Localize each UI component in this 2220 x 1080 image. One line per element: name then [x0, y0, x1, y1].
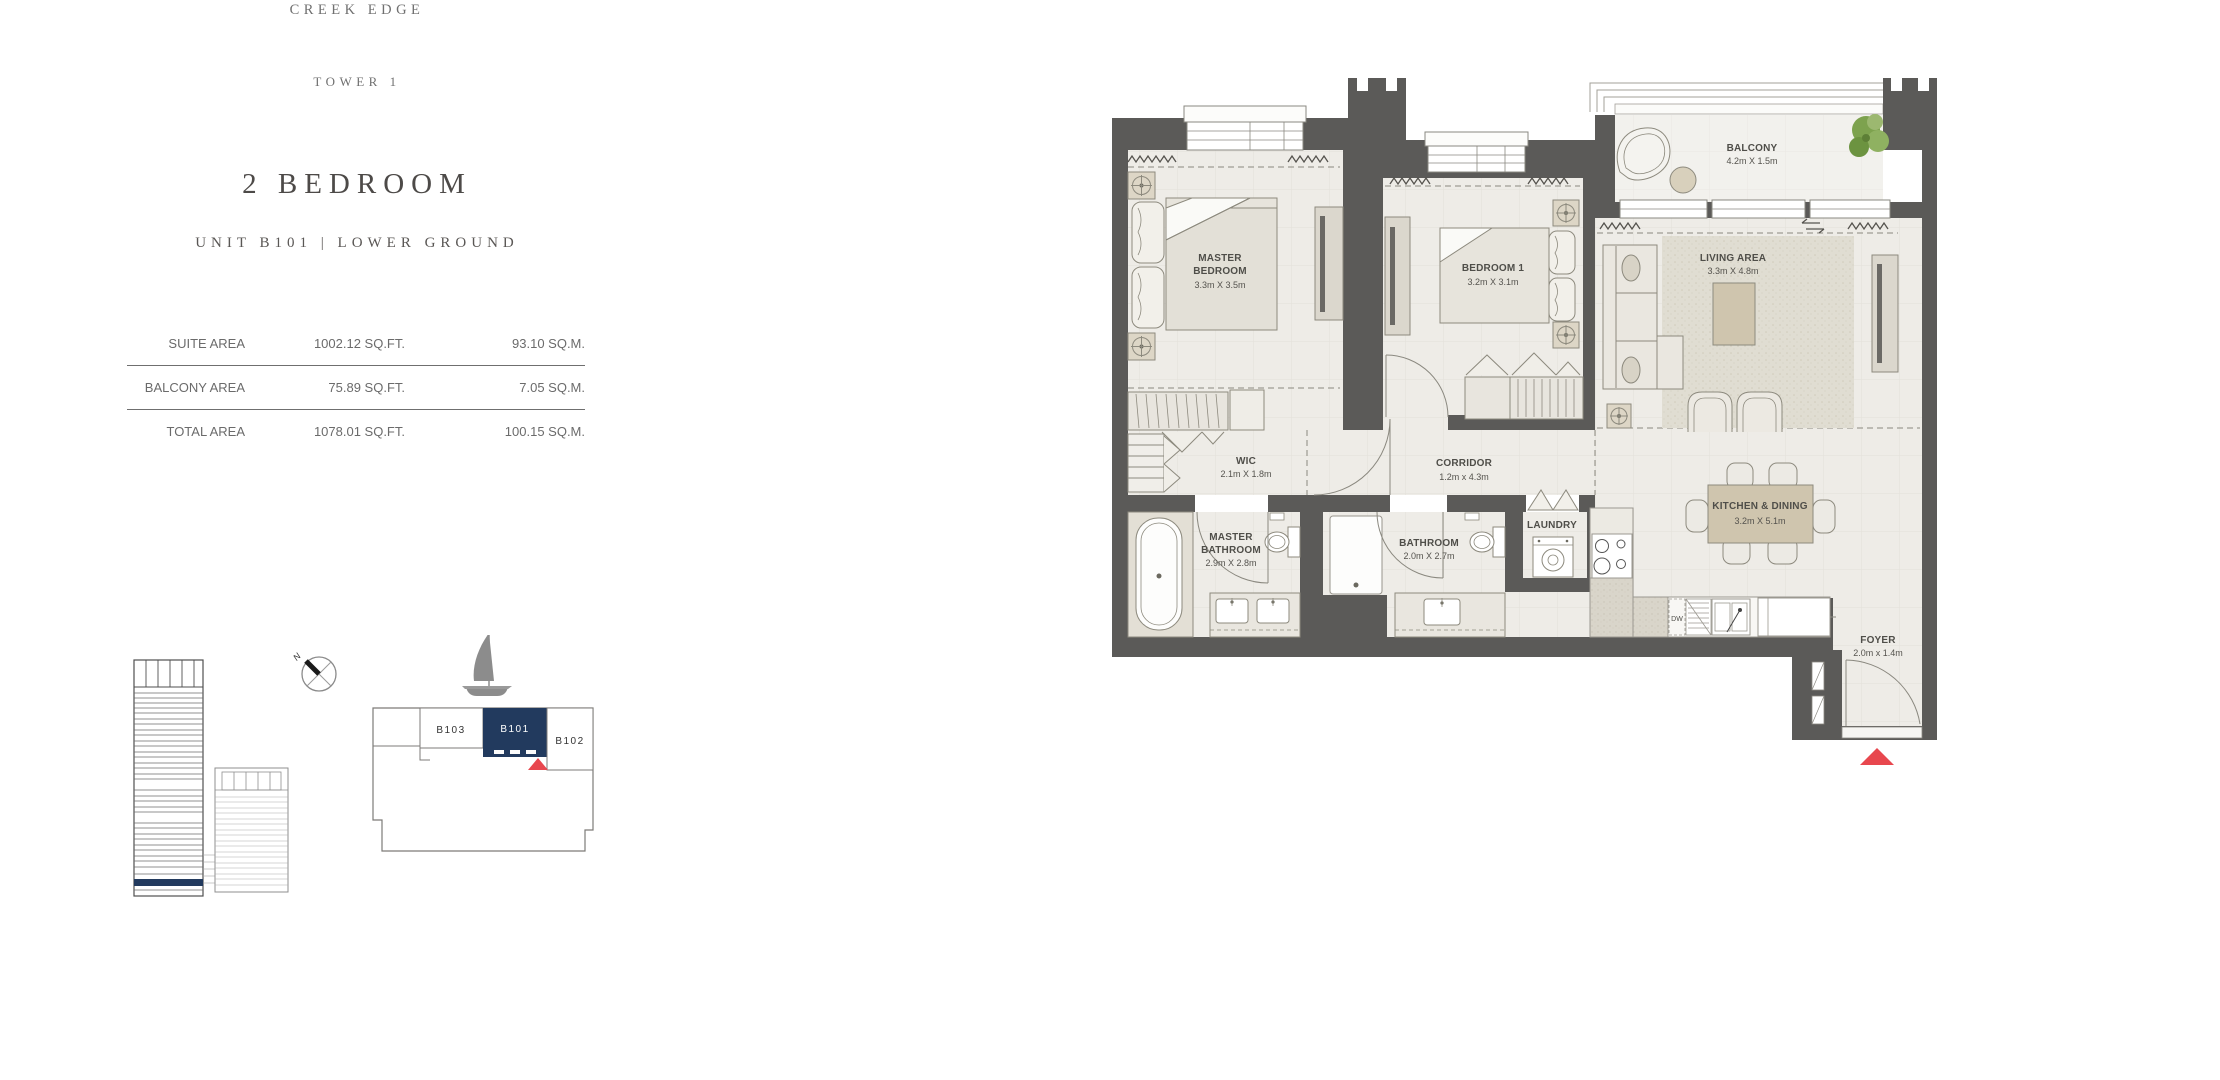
tv-dresser — [1315, 207, 1343, 320]
table-row: SUITE AREA 1002.12 SQ.FT. 93.10 SQ.M. — [127, 322, 585, 366]
area-sqm: 100.15 SQ.M. — [405, 424, 585, 439]
area-sqft: 75.89 SQ.FT. — [245, 380, 405, 395]
ac-symbol — [1607, 404, 1631, 428]
unit-info: UNIT B101 | LOWER GROUND — [107, 235, 607, 252]
window-master-bedroom — [1184, 106, 1306, 150]
svg-text:4.2m X 1.5m: 4.2m X 1.5m — [1726, 156, 1777, 166]
ac-symbol — [1553, 200, 1579, 226]
window-living-balcony — [1620, 200, 1890, 218]
tv-screen — [1390, 227, 1395, 325]
ac-symbol — [1553, 322, 1579, 348]
key-plan: B103 B101 B102 — [373, 708, 593, 851]
svg-text:FOYER: FOYER — [1860, 635, 1896, 646]
dishwasher-label: DW — [1671, 616, 1683, 623]
stove — [1592, 534, 1632, 578]
ac-symbol — [1128, 172, 1155, 199]
svg-text:2.9m X 2.8m: 2.9m X 2.8m — [1205, 558, 1256, 568]
tv-unit — [1872, 255, 1898, 372]
key-plan-label-b102: B102 — [555, 736, 584, 747]
wall-notches — [1357, 78, 1929, 91]
double-vanity — [1210, 593, 1300, 637]
svg-text:CORRIDOR: CORRIDOR — [1436, 458, 1493, 469]
tv-dresser — [1385, 217, 1410, 335]
room-label-master-bathroom: MASTER BATHROOM 2.9m X 2.8m — [1201, 532, 1261, 568]
area-sqft: 1078.01 SQ.FT. — [245, 424, 405, 439]
floor-plan: MASTER BEDROOM 3.3m X 3.5m — [1105, 40, 1965, 775]
area-label: SUITE AREA — [127, 336, 245, 351]
north-label: N — [291, 651, 303, 663]
svg-text:BATHROOM: BATHROOM — [1201, 545, 1261, 556]
svg-text:MASTER: MASTER — [1198, 253, 1242, 264]
terrace-edge-lines — [1590, 83, 1886, 114]
compass-icon: N — [291, 651, 336, 691]
side-table — [1670, 167, 1696, 193]
tv-screen — [1877, 264, 1882, 363]
svg-text:BALCONY: BALCONY — [1727, 143, 1778, 154]
area-table: SUITE AREA 1002.12 SQ.FT. 93.10 SQ.M. BA… — [127, 322, 585, 453]
location-graphics: N B103 B101 B102 — [85, 635, 625, 925]
floorplan-sheet: CREEK EDGE TOWER 1 2 BEDROOM UNIT B101 |… — [0, 0, 2220, 1080]
svg-text:KITCHEN & DINING: KITCHEN & DINING — [1712, 501, 1807, 512]
svg-text:LIVING AREA: LIVING AREA — [1700, 253, 1766, 264]
project-title: CREEK EDGE — [107, 2, 607, 19]
area-label: BALCONY AREA — [127, 380, 245, 395]
tv-screen — [1320, 216, 1325, 312]
svg-text:BEDROOM 1: BEDROOM 1 — [1462, 263, 1525, 274]
sink — [1712, 599, 1750, 635]
table-row: TOTAL AREA 1078.01 SQ.FT. 100.15 SQ.M. — [127, 410, 585, 453]
dining-table — [1708, 485, 1813, 543]
svg-text:MASTER: MASTER — [1209, 532, 1253, 543]
tower-title: TOWER 1 — [107, 74, 607, 90]
svg-text:2.0m x 1.4m: 2.0m x 1.4m — [1853, 648, 1903, 658]
room-label-master-bedroom: MASTER BEDROOM 3.3m X 3.5m — [1193, 253, 1247, 290]
shower — [1330, 516, 1382, 594]
svg-text:3.3m X 3.5m: 3.3m X 3.5m — [1194, 280, 1245, 290]
dhow-boat-icon — [462, 635, 512, 696]
area-sqm: 93.10 SQ.M. — [405, 336, 585, 351]
unit-type-title: 2 BEDROOM — [107, 168, 607, 201]
window-bedroom1 — [1425, 132, 1528, 172]
room-label-laundry: LAUNDRY — [1527, 520, 1577, 531]
svg-text:3.2m X 5.1m: 3.2m X 5.1m — [1734, 516, 1785, 526]
highlighted-floor-band — [134, 879, 203, 886]
area-sqm: 7.05 SQ.M. — [405, 380, 585, 395]
svg-text:WIC: WIC — [1236, 456, 1256, 467]
washing-machine — [1533, 537, 1573, 577]
coffee-table — [1713, 283, 1755, 345]
tower-elevation-short — [203, 768, 288, 892]
key-plan-label-b103: B103 — [436, 725, 465, 736]
svg-text:1.2m x 4.3m: 1.2m x 4.3m — [1439, 472, 1489, 482]
dish-rack — [1686, 599, 1711, 635]
svg-text:2.1m X 1.8m: 2.1m X 1.8m — [1220, 469, 1271, 479]
ac-symbol — [1128, 333, 1155, 360]
svg-text:2.0m X 2.7m: 2.0m X 2.7m — [1403, 551, 1454, 561]
fridge — [1758, 598, 1830, 636]
area-sqft: 1002.12 SQ.FT. — [245, 336, 405, 351]
svg-text:BEDROOM: BEDROOM — [1193, 266, 1247, 277]
area-label: TOTAL AREA — [127, 424, 245, 439]
svg-text:BATHROOM: BATHROOM — [1399, 538, 1459, 549]
tower-elevation-tall — [134, 660, 203, 896]
entry-marker — [1860, 748, 1894, 765]
key-plan-label-b101: B101 — [500, 724, 529, 735]
kitchen-counter — [1668, 597, 1830, 637]
svg-text:3.3m X 4.8m: 3.3m X 4.8m — [1707, 266, 1758, 276]
svg-text:3.2m X 3.1m: 3.2m X 3.1m — [1467, 277, 1518, 287]
vanity — [1395, 593, 1505, 637]
table-row: BALCONY AREA 75.89 SQ.FT. 7.05 SQ.M. — [127, 366, 585, 410]
